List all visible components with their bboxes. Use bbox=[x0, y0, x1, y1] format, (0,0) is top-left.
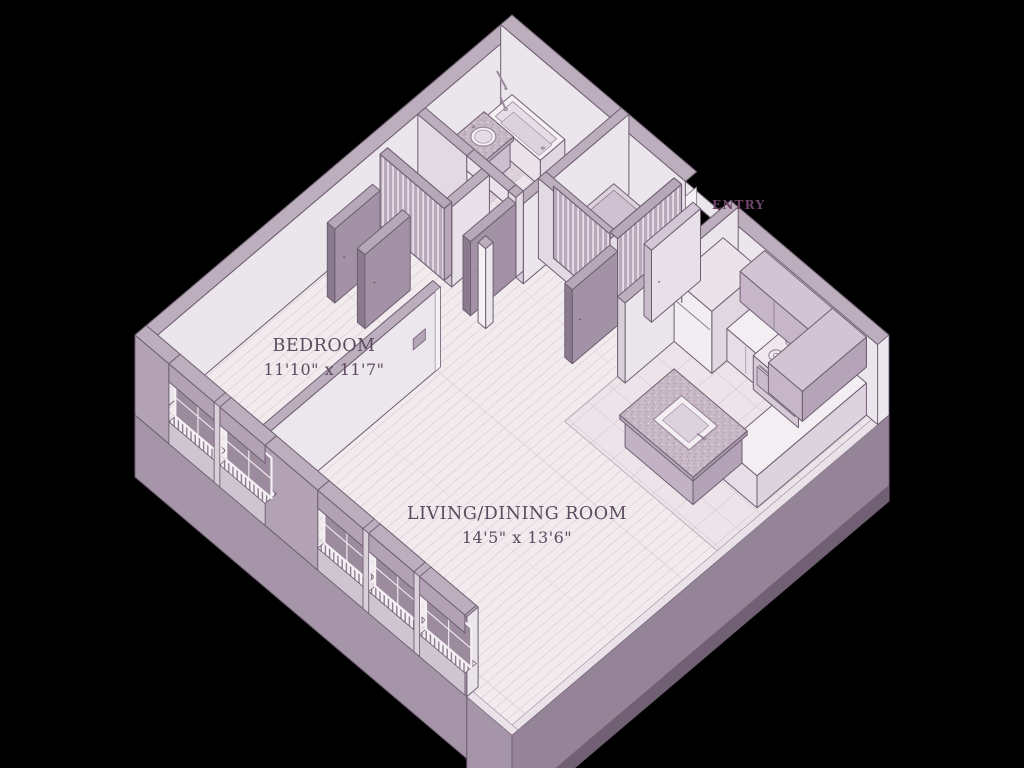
closet-door-panel bbox=[565, 283, 573, 363]
entry-label: ENTRY bbox=[712, 198, 765, 212]
bedroom-label: BEDROOM bbox=[273, 336, 376, 356]
shower-head-icon bbox=[504, 87, 507, 90]
wall-end-cap bbox=[878, 335, 889, 425]
bedroom-closet-louver-doors bbox=[444, 202, 452, 280]
entry-door-panel bbox=[644, 244, 652, 322]
bathtub-drain bbox=[541, 147, 544, 149]
window-mullion bbox=[214, 402, 220, 487]
open-door-panel bbox=[357, 248, 365, 328]
floorplan-canvas: BEDROOM 11'10" x 11'7" LIVING/DINING ROO… bbox=[0, 0, 1024, 768]
door-knob bbox=[343, 256, 345, 258]
kitchen-wall-stub bbox=[618, 297, 626, 383]
bedroom-door-jamb bbox=[435, 287, 440, 372]
door-knob bbox=[658, 281, 660, 283]
living-dining-dimensions: 14'5" x 13'6" bbox=[462, 528, 572, 547]
door-knob bbox=[373, 282, 375, 284]
living-dining-label: LIVING/DINING ROOM bbox=[407, 504, 627, 524]
window-mullion bbox=[363, 529, 369, 614]
vanity-faucet bbox=[472, 126, 475, 128]
bathroom-wall-south bbox=[516, 191, 524, 277]
bedroom-wall bbox=[478, 242, 486, 328]
vanity-handle bbox=[464, 133, 466, 135]
bathroom-door-panel bbox=[463, 235, 471, 315]
vanity-sink-basin bbox=[475, 130, 493, 143]
open-door-panel bbox=[327, 223, 335, 303]
bedroom-wall bbox=[486, 242, 494, 328]
door-knob bbox=[579, 319, 581, 321]
window-mullion bbox=[414, 572, 420, 657]
bedroom-dimensions: 11'10" x 11'7" bbox=[264, 360, 385, 379]
bathtub-spout bbox=[504, 108, 508, 111]
vanity-handle bbox=[480, 119, 482, 121]
